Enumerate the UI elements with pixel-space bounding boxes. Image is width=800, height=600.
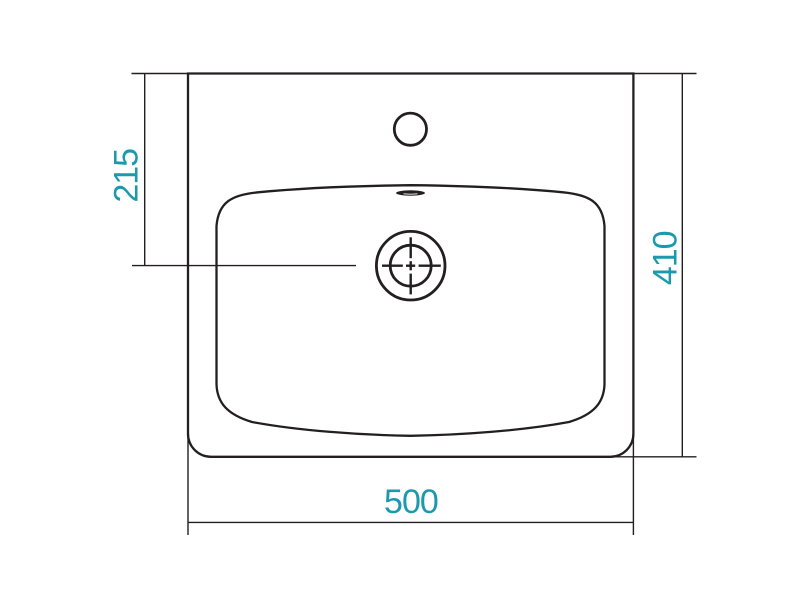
svg-text:500: 500 <box>384 483 438 521</box>
svg-text:410: 410 <box>647 231 685 285</box>
svg-text:215: 215 <box>107 149 145 203</box>
